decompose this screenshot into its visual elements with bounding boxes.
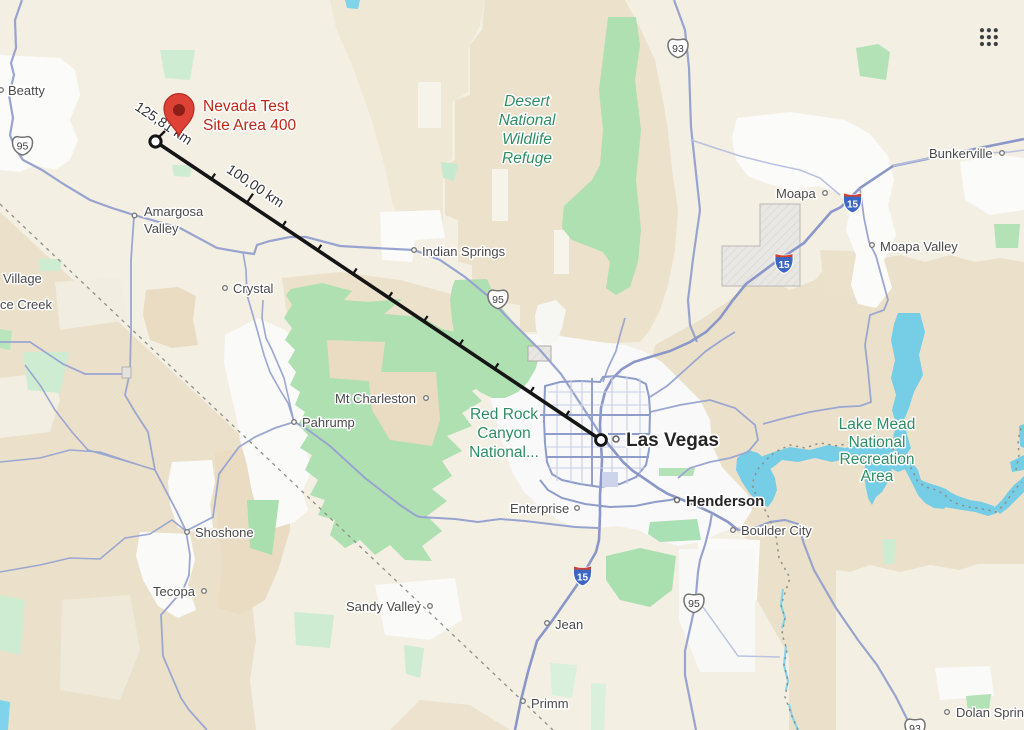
svg-text:Moapa: Moapa	[776, 186, 817, 201]
svg-text:95: 95	[688, 598, 700, 610]
svg-text:Jean: Jean	[555, 617, 583, 632]
svg-text:ce Creek: ce Creek	[0, 297, 53, 312]
svg-text:Canyon: Canyon	[477, 425, 530, 442]
svg-text:Crystal: Crystal	[233, 281, 274, 296]
svg-text:Primm: Primm	[531, 696, 569, 711]
svg-text:Henderson: Henderson	[686, 493, 764, 510]
svg-text:Enterprise: Enterprise	[510, 501, 569, 516]
svg-text:15: 15	[847, 200, 859, 211]
svg-text:National...: National...	[469, 444, 539, 461]
svg-text:95: 95	[17, 141, 29, 153]
svg-text:Indian Springs: Indian Springs	[422, 244, 506, 259]
svg-text:Las Vegas: Las Vegas	[626, 430, 719, 451]
svg-text:National: National	[499, 112, 556, 129]
svg-text:Amargosa: Amargosa	[144, 204, 204, 219]
svg-text:Tecopa: Tecopa	[153, 584, 196, 599]
svg-text:Moapa Valley: Moapa Valley	[880, 239, 958, 254]
svg-text:Area: Area	[861, 468, 894, 485]
svg-text:National: National	[849, 434, 906, 451]
svg-text:Sandy Valley: Sandy Valley	[346, 599, 421, 614]
svg-text:93: 93	[672, 43, 684, 55]
svg-text:Refuge: Refuge	[502, 150, 552, 167]
svg-text:Lake Mead: Lake Mead	[839, 416, 916, 433]
svg-text:Red Rock: Red Rock	[470, 406, 538, 423]
svg-text:Boulder City: Boulder City	[741, 523, 812, 538]
svg-text:Shoshone: Shoshone	[195, 525, 254, 540]
svg-text:93: 93	[909, 723, 921, 730]
svg-text:15: 15	[778, 260, 790, 271]
svg-text:95: 95	[492, 294, 504, 306]
svg-text:Nevada Test: Nevada Test	[203, 98, 290, 115]
svg-text:Bunkerville: Bunkerville	[929, 146, 993, 161]
svg-text:Wildlife: Wildlife	[502, 131, 552, 148]
svg-text:Valley: Valley	[144, 221, 179, 236]
svg-text:Beatty: Beatty	[8, 83, 45, 98]
svg-text:Village: Village	[3, 271, 42, 286]
svg-text:Pahrump: Pahrump	[302, 415, 355, 430]
svg-text:Dolan Springs: Dolan Springs	[956, 705, 1024, 720]
svg-text:Desert: Desert	[504, 93, 550, 110]
svg-text:15: 15	[577, 573, 589, 584]
svg-text:Site Area 400: Site Area 400	[203, 117, 296, 134]
svg-text:Recreation: Recreation	[840, 451, 915, 468]
svg-text:Mt Charleston: Mt Charleston	[335, 391, 416, 406]
